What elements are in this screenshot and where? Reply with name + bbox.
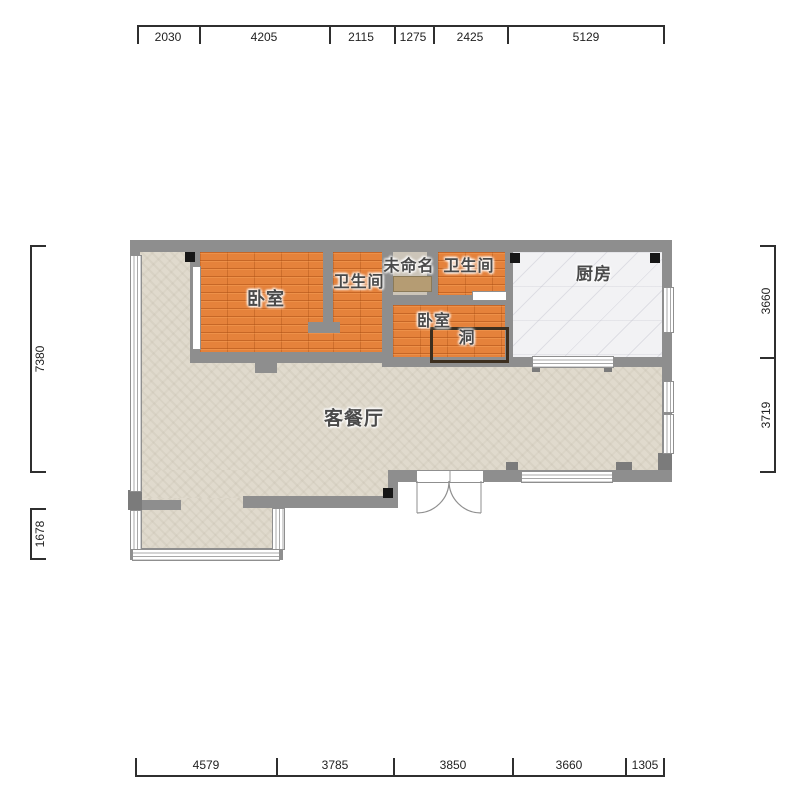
room-label-bathroom-2: 卫生间 — [443, 252, 494, 276]
entry-door-swing-arcs — [0, 0, 800, 800]
dim-bottom-4: 3660 — [556, 758, 583, 772]
corner-marker-3 — [650, 253, 660, 263]
dim-left-2: 1678 — [33, 521, 47, 548]
room-label-unnamed: 未命名 — [383, 252, 434, 276]
dim-right-2: 3719 — [759, 402, 773, 429]
dim-top-2: 4205 — [251, 30, 278, 44]
dim-top-4: 1275 — [400, 30, 427, 44]
dim-top-1: 2030 — [155, 30, 182, 44]
dim-top-5: 2425 — [457, 30, 484, 44]
room-label-hole: 洞 — [458, 324, 475, 348]
dim-bottom-2: 3785 — [322, 758, 349, 772]
corner-marker-1 — [185, 252, 195, 262]
corner-marker-2 — [510, 253, 520, 263]
room-label-bedroom-2: 卧室 — [417, 307, 451, 331]
room-label-living: 客餐厅 — [324, 404, 384, 431]
corner-marker-4 — [383, 488, 393, 498]
dim-bottom-1: 4579 — [193, 758, 220, 772]
room-label-bathroom-1: 卫生间 — [333, 268, 384, 292]
dim-bottom-5: 1305 — [632, 758, 659, 772]
room-label-kitchen: 厨房 — [576, 260, 612, 285]
dim-top-3: 2115 — [348, 30, 374, 44]
room-label-bedroom-1: 卧室 — [247, 285, 285, 311]
dim-top-6: 5129 — [573, 30, 600, 44]
floor-plan-canvas: 卧室 卫生间 未命名 卫生间 厨房 卧室 洞 客餐厅 2030 4205 211… — [0, 0, 800, 800]
unnamed-room-cabinet — [393, 276, 432, 292]
dim-right-1: 3660 — [759, 288, 773, 315]
dim-bottom-3: 3850 — [440, 758, 467, 772]
dim-left-1: 7380 — [33, 346, 47, 373]
